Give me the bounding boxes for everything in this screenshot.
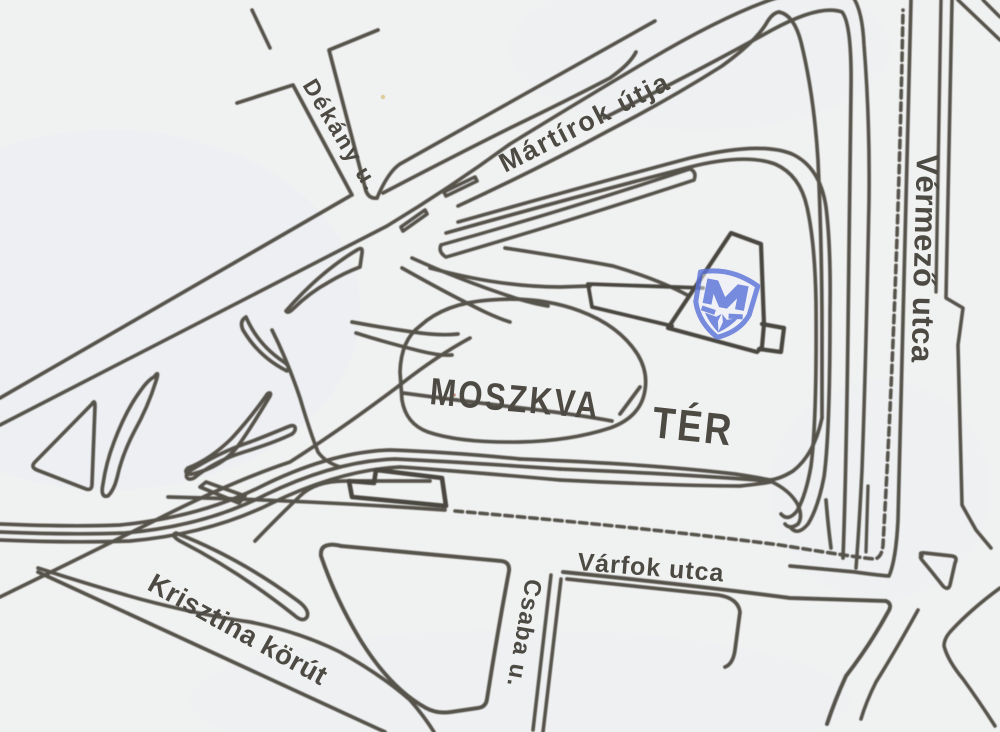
svg-text:Vérmező utca: Vérmező utca (905, 154, 945, 364)
svg-text:TÉR: TÉR (650, 397, 736, 455)
